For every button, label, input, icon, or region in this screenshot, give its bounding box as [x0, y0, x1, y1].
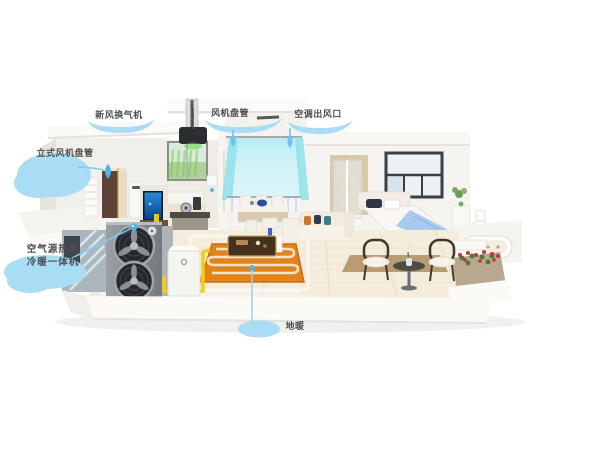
buffer-tank [168, 246, 200, 296]
label-floor-heating: 地暖 [285, 322, 304, 333]
label-floor-standing-fan-coil: 立式风机盘管 [36, 149, 93, 160]
coffee-table [228, 236, 276, 256]
floor-standing-ac-unit [102, 168, 127, 218]
blue-centerpiece [257, 200, 267, 207]
label-heat-pump-line1: 空气源热泵 [27, 244, 80, 257]
label-heat-pump-line2: 冷暖一体机 [27, 257, 80, 270]
house-cutaway-illustration [0, 0, 600, 450]
label-fan-coil: 风机盘管 [211, 109, 249, 120]
label-air-outlet: 空调出风口 [294, 110, 342, 121]
heat-pump-home-diagram: 新风换气机 风机盘管 空调出风口 立式风机盘管 空气源热泵 冷暖一体机 地暖 [0, 0, 600, 450]
range-hood-unit [179, 127, 207, 144]
label-fresh-air-unit: 新风换气机 [95, 111, 143, 122]
flower-planter [448, 250, 510, 306]
nightstand [452, 206, 470, 228]
label-heat-pump-unit: 空气源热泵 冷暖一体机 [27, 244, 80, 269]
fan-bottom [115, 262, 153, 300]
